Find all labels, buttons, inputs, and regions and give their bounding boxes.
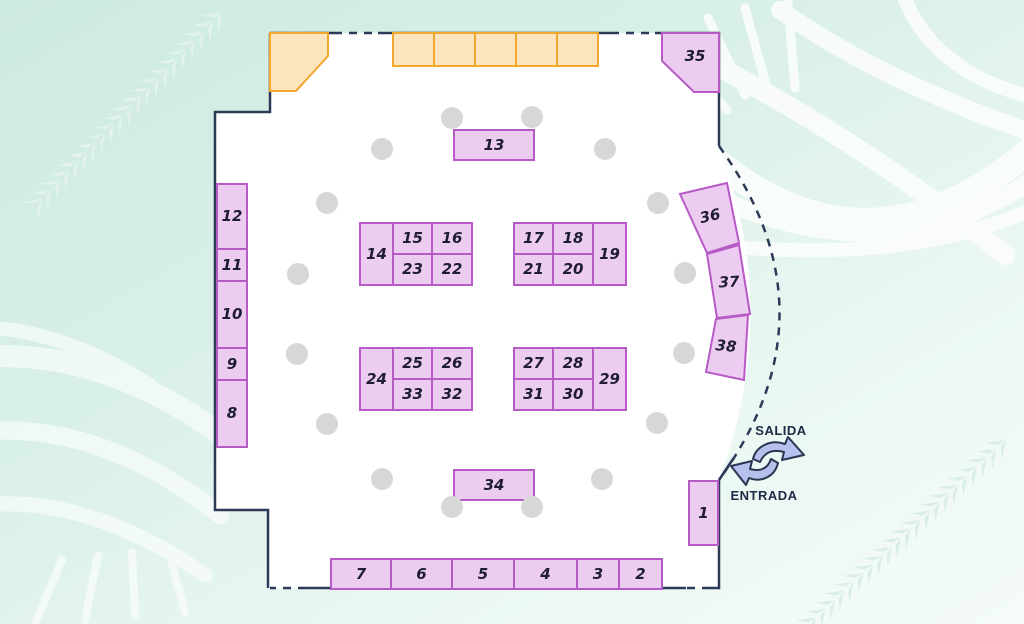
booth-27[interactable]: 27 [513, 347, 554, 380]
booth-14[interactable]: 14 [359, 222, 394, 286]
booth-20[interactable]: 20 [552, 253, 594, 286]
floor-plan-drawing [0, 0, 1024, 624]
booth-18[interactable]: 18 [552, 222, 594, 255]
booth-13[interactable]: 13 [453, 129, 535, 161]
booth-24[interactable]: 24 [359, 347, 394, 411]
column-dot [591, 468, 613, 490]
stand-orange-2[interactable] [434, 33, 475, 66]
column-dot [371, 138, 393, 160]
column-dot [594, 138, 616, 160]
booth-17[interactable]: 17 [513, 222, 554, 255]
booth-15[interactable]: 15 [392, 222, 433, 255]
booth-2[interactable]: 2 [618, 558, 663, 590]
column-dot [441, 107, 463, 129]
stand-orange-4[interactable] [516, 33, 557, 66]
booth-22[interactable]: 22 [431, 253, 473, 286]
wheat-braid-decoration-bottom-right [795, 431, 1014, 624]
exit-label: SALIDA [749, 423, 813, 439]
booth-9[interactable]: 9 [216, 347, 248, 381]
column-dot [441, 496, 463, 518]
column-dot [673, 342, 695, 364]
booth-4[interactable]: 4 [513, 558, 578, 590]
column-dot [647, 192, 669, 214]
booth-5[interactable]: 5 [451, 558, 515, 590]
booth-10[interactable]: 10 [216, 280, 248, 349]
entrance-label: ENTRADA [726, 488, 802, 504]
entrance-arrow-icon [731, 459, 778, 485]
venue-floor-plan: 12 11 10 9 8 13 34 14 15 16 23 22 17 18 … [0, 0, 1024, 624]
booth-23[interactable]: 23 [392, 253, 433, 286]
column-dot [316, 413, 338, 435]
stand-orange-1[interactable] [393, 33, 434, 66]
booth-30[interactable]: 30 [552, 378, 594, 411]
booth-32[interactable]: 32 [431, 378, 473, 411]
stand-orange-3[interactable] [475, 33, 516, 66]
booth-21[interactable]: 21 [513, 253, 554, 286]
booth-7[interactable]: 7 [330, 558, 392, 590]
hall-floor [215, 33, 751, 588]
column-dot [521, 106, 543, 128]
booth-3[interactable]: 3 [576, 558, 620, 590]
booth-6[interactable]: 6 [390, 558, 453, 590]
booth-28[interactable]: 28 [552, 347, 594, 380]
yarn-ball-decoration-bottom-left [0, 327, 235, 624]
exit-arrow-icon [753, 437, 804, 462]
column-dot [371, 468, 393, 490]
booth-31[interactable]: 31 [513, 378, 554, 411]
booth-34[interactable]: 34 [453, 469, 535, 501]
booth-1[interactable]: 1 [688, 480, 719, 546]
booth-16[interactable]: 16 [431, 222, 473, 255]
booth-35-label: 35 [677, 46, 713, 66]
booth-12[interactable]: 12 [216, 183, 248, 250]
column-dot [286, 343, 308, 365]
booth-26[interactable]: 26 [431, 347, 473, 380]
booth-25[interactable]: 25 [392, 347, 433, 380]
booth-29[interactable]: 29 [592, 347, 627, 411]
booth-8[interactable]: 8 [216, 379, 248, 448]
column-dot [316, 192, 338, 214]
wheat-braid-decoration-top-left [21, 4, 230, 220]
booth-33[interactable]: 33 [392, 378, 433, 411]
column-dot [521, 496, 543, 518]
column-dot [646, 412, 668, 434]
booth-19[interactable]: 19 [592, 222, 627, 286]
column-dot [287, 263, 309, 285]
booth-38-label: 38 [707, 334, 745, 357]
booth-37-label: 37 [711, 271, 748, 293]
stand-orange-5[interactable] [557, 33, 598, 66]
column-dot [674, 262, 696, 284]
booth-11[interactable]: 11 [216, 248, 248, 282]
